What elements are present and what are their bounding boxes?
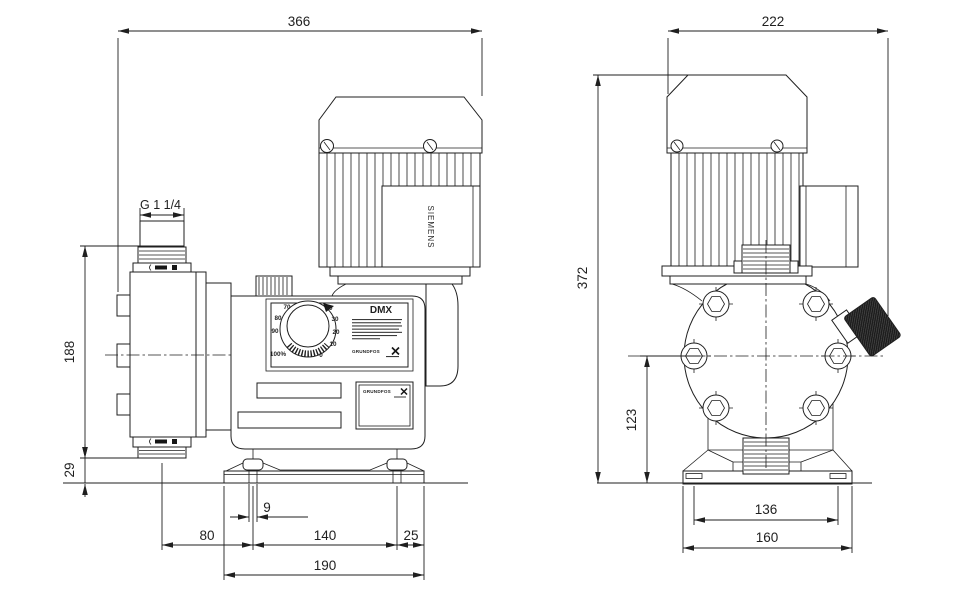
base-plate-side — [224, 471, 424, 483]
front-view: 222 372 123 136 160 — [575, 14, 901, 553]
svg-text:GRUNDFOS: GRUNDFOS — [352, 349, 380, 354]
dial-knob[interactable] — [287, 305, 329, 347]
technical-drawing: SIEMENS — [0, 0, 976, 600]
dial-scale-20: 20 — [332, 329, 340, 336]
foot-boss — [387, 459, 407, 470]
siemens-label: SIEMENS — [426, 205, 435, 248]
pump-body-side: 0 10 20 30 40 70 80 90 100% DMX — [231, 276, 425, 449]
dial-scale-0: 0 — [319, 352, 323, 359]
knurled-knob[interactable] — [843, 296, 901, 357]
body-slot — [257, 383, 341, 398]
dim-foot-spacing-front: 136 — [694, 486, 838, 525]
dim-value: 372 — [575, 267, 590, 290]
dim-value: 29 — [62, 462, 77, 477]
dim-value: 188 — [62, 341, 77, 364]
dim-value: 123 — [624, 409, 639, 432]
side-view: SIEMENS — [62, 14, 482, 580]
dosing-head-side — [105, 221, 232, 458]
nameplate: GRUNDFOS — [356, 382, 413, 429]
dim-value: 190 — [314, 558, 337, 573]
head-adapter-plate — [206, 283, 231, 430]
fan-cover-side — [319, 97, 482, 153]
dim-foot-offset-right: 25 — [397, 486, 424, 580]
motor-flange — [330, 267, 470, 276]
grundfos-logo: GRUNDFOS — [363, 389, 391, 394]
dial-scale-10: 10 — [329, 341, 337, 348]
dim-value: G 1 1/4 — [140, 198, 181, 212]
motor-side: SIEMENS — [319, 97, 482, 296]
dim-value: 160 — [756, 530, 779, 545]
dim-value: 80 — [199, 528, 214, 543]
motor-flange-lower — [670, 276, 806, 284]
control-panel: 0 10 20 30 40 70 80 90 100% DMX — [266, 299, 413, 371]
dim-bottom-clearance: 29 — [62, 444, 140, 497]
dial-scale-80: 80 — [274, 315, 282, 322]
head-flange-plate — [196, 272, 206, 437]
foot-boss — [243, 459, 263, 470]
dim-value: 366 — [288, 14, 311, 29]
dial-scale-100: 100% — [270, 351, 287, 358]
dim-value: 9 — [263, 500, 271, 515]
dim-value: 140 — [314, 528, 337, 543]
model-label: DMX — [370, 305, 393, 316]
dial-scale-70: 70 — [283, 304, 291, 311]
dial-scale-40: 40 — [325, 305, 333, 312]
inlet-pipe — [140, 221, 184, 247]
dim-slot-width: 9 — [230, 484, 308, 522]
motor-front — [667, 75, 858, 267]
dim-connection-thread: G 1 1/4 — [140, 198, 184, 221]
body-slot — [238, 412, 341, 428]
dial-scale-30: 30 — [331, 316, 339, 323]
dim-value: 25 — [403, 528, 418, 543]
head-tab — [117, 394, 130, 415]
drawing-svg: SIEMENS — [0, 0, 976, 600]
gear-housing — [426, 284, 458, 386]
dim-value: 136 — [755, 502, 778, 517]
dim-value: 222 — [762, 14, 785, 29]
dim-base-width-front: 160 — [683, 486, 852, 553]
motor-flange-lower — [338, 276, 462, 284]
base-side — [224, 449, 424, 483]
dial-scale-90: 90 — [271, 328, 279, 335]
outlet-thread — [138, 447, 186, 458]
head-tab — [117, 295, 130, 316]
head-tab — [117, 344, 130, 367]
junction-box — [800, 186, 858, 267]
fan-cover-front — [667, 75, 807, 153]
head-block — [130, 272, 196, 437]
dim-foot-spacing-side: 140 — [253, 486, 397, 550]
